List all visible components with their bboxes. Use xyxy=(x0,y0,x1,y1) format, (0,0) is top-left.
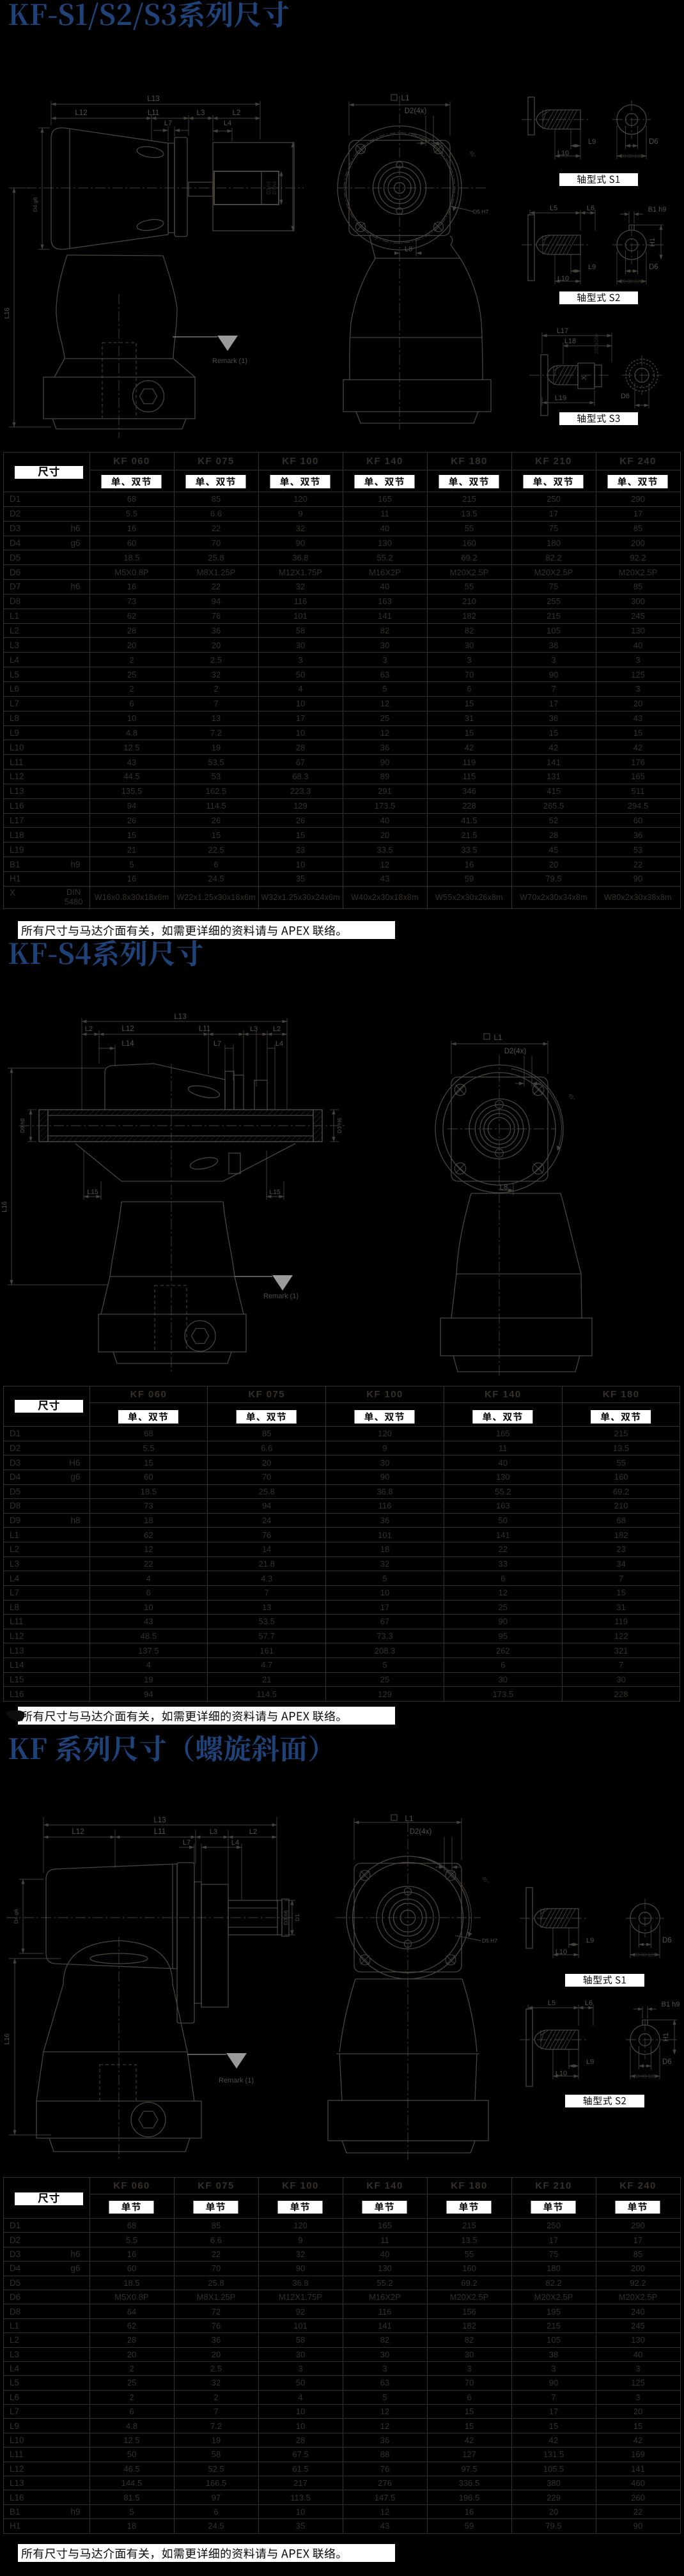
svg-text:D6: D6 xyxy=(649,263,658,271)
svg-text:L3: L3 xyxy=(210,1828,217,1836)
svg-text:H1: H1 xyxy=(649,238,657,247)
svg-text:L11: L11 xyxy=(199,1025,210,1033)
svg-text:Remark (1): Remark (1) xyxy=(212,357,247,365)
svg-text:28 08 120: 28 08 120 xyxy=(633,2074,657,2079)
svg-text:45°: 45° xyxy=(481,1875,490,1885)
svg-text:L2: L2 xyxy=(273,1025,281,1033)
svg-text:D1: D1 xyxy=(294,1914,300,1921)
svg-text:L6: L6 xyxy=(585,1999,593,2007)
svg-text:L4: L4 xyxy=(224,120,231,127)
svg-text:D4 g6: D4 g6 xyxy=(13,1909,19,1923)
svg-text:L13: L13 xyxy=(174,1013,186,1021)
svg-text:L13: L13 xyxy=(153,1817,166,1824)
svg-text:L1: L1 xyxy=(494,1033,502,1042)
svg-text:28 08 120: 28 08 120 xyxy=(620,153,643,159)
svg-text:L17: L17 xyxy=(557,327,568,335)
svg-text:D6: D6 xyxy=(662,1937,672,1944)
svg-text:L15: L15 xyxy=(269,1188,281,1196)
svg-text:Remark (1): Remark (1) xyxy=(263,1292,299,1300)
svg-text:L10: L10 xyxy=(557,150,569,157)
svg-text:B1 h9: B1 h9 xyxy=(648,206,667,213)
svg-text:L18: L18 xyxy=(564,338,576,345)
svg-text:D6: D6 xyxy=(649,138,658,146)
svg-text:L6: L6 xyxy=(587,205,595,212)
svg-text:D3 H6: D3 H6 xyxy=(336,1118,343,1133)
svg-text:D4 g6: D4 g6 xyxy=(32,197,38,212)
svg-text:L12: L12 xyxy=(121,1025,134,1033)
svg-text:L7: L7 xyxy=(164,120,172,127)
svg-text:B1 h9: B1 h9 xyxy=(662,2001,680,2008)
svg-text:L11: L11 xyxy=(148,109,159,117)
svg-text:28 08 120: 28 08 120 xyxy=(633,1952,657,1958)
svg-text:L5: L5 xyxy=(550,205,557,212)
svg-text:L10: L10 xyxy=(557,275,569,283)
svg-text:L9: L9 xyxy=(588,138,596,146)
svg-text:L8: L8 xyxy=(405,245,412,253)
svg-text:L11: L11 xyxy=(154,1828,166,1836)
svg-text:H1: H1 xyxy=(662,2033,670,2042)
svg-text:D5 H7: D5 H7 xyxy=(482,1937,497,1944)
svg-text:L10: L10 xyxy=(556,2070,567,2077)
svg-text:L14: L14 xyxy=(121,1040,134,1048)
svg-text:L7: L7 xyxy=(214,1040,221,1048)
svg-text:L4: L4 xyxy=(276,1040,283,1048)
svg-text:L2: L2 xyxy=(233,109,241,117)
svg-text:45°: 45° xyxy=(468,150,477,159)
svg-text:X: X xyxy=(580,375,588,380)
svg-text:L8: L8 xyxy=(500,1184,508,1191)
svg-text:L16: L16 xyxy=(3,2033,11,2045)
svg-text:D5 H7: D5 H7 xyxy=(473,208,488,215)
svg-text:L3: L3 xyxy=(197,109,205,117)
svg-text:L16: L16 xyxy=(3,307,11,319)
svg-text:45°: 45° xyxy=(567,1092,576,1102)
svg-text:L12: L12 xyxy=(72,1828,84,1836)
svg-text:L13: L13 xyxy=(147,95,159,103)
svg-text:L16: L16 xyxy=(1,1201,8,1213)
svg-text:D9 h8: D9 h8 xyxy=(19,1118,26,1133)
svg-text:Remark (1): Remark (1) xyxy=(219,2077,254,2084)
svg-text:L19: L19 xyxy=(555,394,566,402)
svg-text:L9: L9 xyxy=(588,263,596,271)
svg-text:28 08 120: 28 08 120 xyxy=(620,279,643,284)
svg-text:L2: L2 xyxy=(85,1025,93,1033)
svg-text:L1: L1 xyxy=(405,1814,414,1823)
svg-text:L5: L5 xyxy=(548,1999,556,2007)
svg-text:L9: L9 xyxy=(586,1937,594,1944)
svg-text:L15: L15 xyxy=(87,1188,98,1196)
svg-text:L4: L4 xyxy=(231,1839,239,1847)
svg-text:2808160: 2808160 xyxy=(594,334,600,354)
svg-text:D2(4x): D2(4x) xyxy=(410,1828,432,1836)
svg-text:D6: D6 xyxy=(621,392,630,400)
svg-text:L10: L10 xyxy=(556,1948,567,1956)
svg-text:L1: L1 xyxy=(401,93,410,102)
svg-text:D2(4x): D2(4x) xyxy=(405,107,427,115)
svg-text:L7: L7 xyxy=(183,1839,190,1847)
svg-text:L2: L2 xyxy=(249,1828,257,1836)
svg-text:D6: D6 xyxy=(662,2058,672,2066)
svg-text:L3: L3 xyxy=(250,1025,258,1033)
svg-text:L9: L9 xyxy=(586,2058,594,2066)
svg-text:L12: L12 xyxy=(75,109,87,117)
svg-text:D2(4x): D2(4x) xyxy=(504,1048,527,1055)
